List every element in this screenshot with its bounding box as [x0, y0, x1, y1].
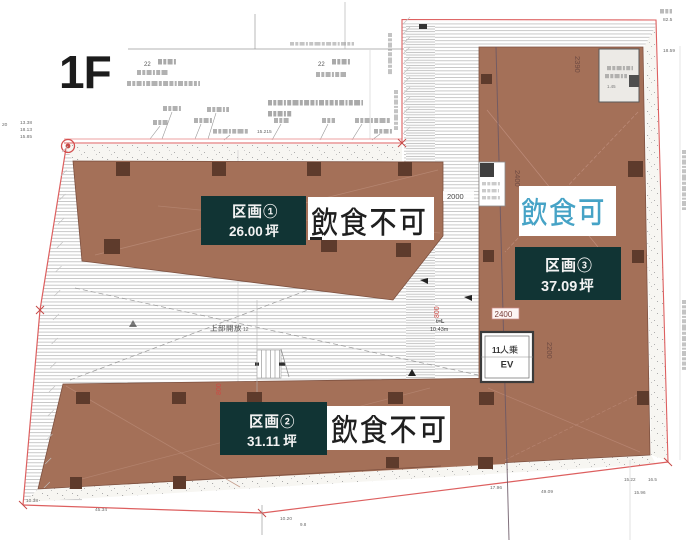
svg-text:1.45: 1.45	[607, 84, 616, 89]
svg-text:16.5: 16.5	[648, 477, 657, 482]
svg-text:2000: 2000	[447, 192, 464, 201]
svg-text:20: 20	[2, 122, 8, 128]
svg-text:45.34: 45.34	[95, 507, 107, 513]
svg-text:10.20: 10.20	[280, 516, 292, 522]
svg-text:12: 12	[243, 327, 249, 333]
svg-text:11: 11	[492, 346, 501, 355]
svg-text:37.09: 37.09	[541, 279, 577, 295]
svg-text:800: 800	[434, 306, 441, 318]
svg-text:9.8: 9.8	[300, 522, 307, 527]
svg-text:22: 22	[144, 62, 151, 68]
svg-text:10.43m: 10.43m	[430, 327, 449, 333]
svg-text:1F: 1F	[59, 46, 111, 98]
svg-text:10.38: 10.38	[26, 498, 38, 504]
svg-text:22: 22	[318, 62, 325, 68]
svg-text:15.96: 15.96	[634, 490, 646, 495]
svg-text:2400: 2400	[513, 170, 522, 187]
svg-text:t=L: t=L	[436, 319, 445, 325]
svg-text:15.215: 15.215	[257, 129, 272, 135]
svg-text:2390: 2390	[573, 56, 582, 73]
svg-text:800: 800	[216, 383, 223, 395]
svg-text:15.22: 15.22	[624, 477, 636, 482]
svg-text:EV: EV	[501, 360, 514, 371]
svg-text:15.85: 15.85	[20, 134, 32, 140]
svg-text:2400: 2400	[495, 310, 513, 319]
svg-text:31.11: 31.11	[247, 434, 281, 449]
svg-text:17.96: 17.96	[490, 485, 502, 491]
svg-text:49.09: 49.09	[541, 489, 553, 495]
svg-text:13.38: 13.38	[20, 120, 32, 126]
svg-text:18.59: 18.59	[663, 48, 675, 54]
svg-text:82.5: 82.5	[663, 17, 673, 23]
svg-text:18.13: 18.13	[20, 127, 32, 133]
svg-text:2200: 2200	[545, 342, 554, 359]
svg-text:26.00: 26.00	[229, 224, 263, 239]
